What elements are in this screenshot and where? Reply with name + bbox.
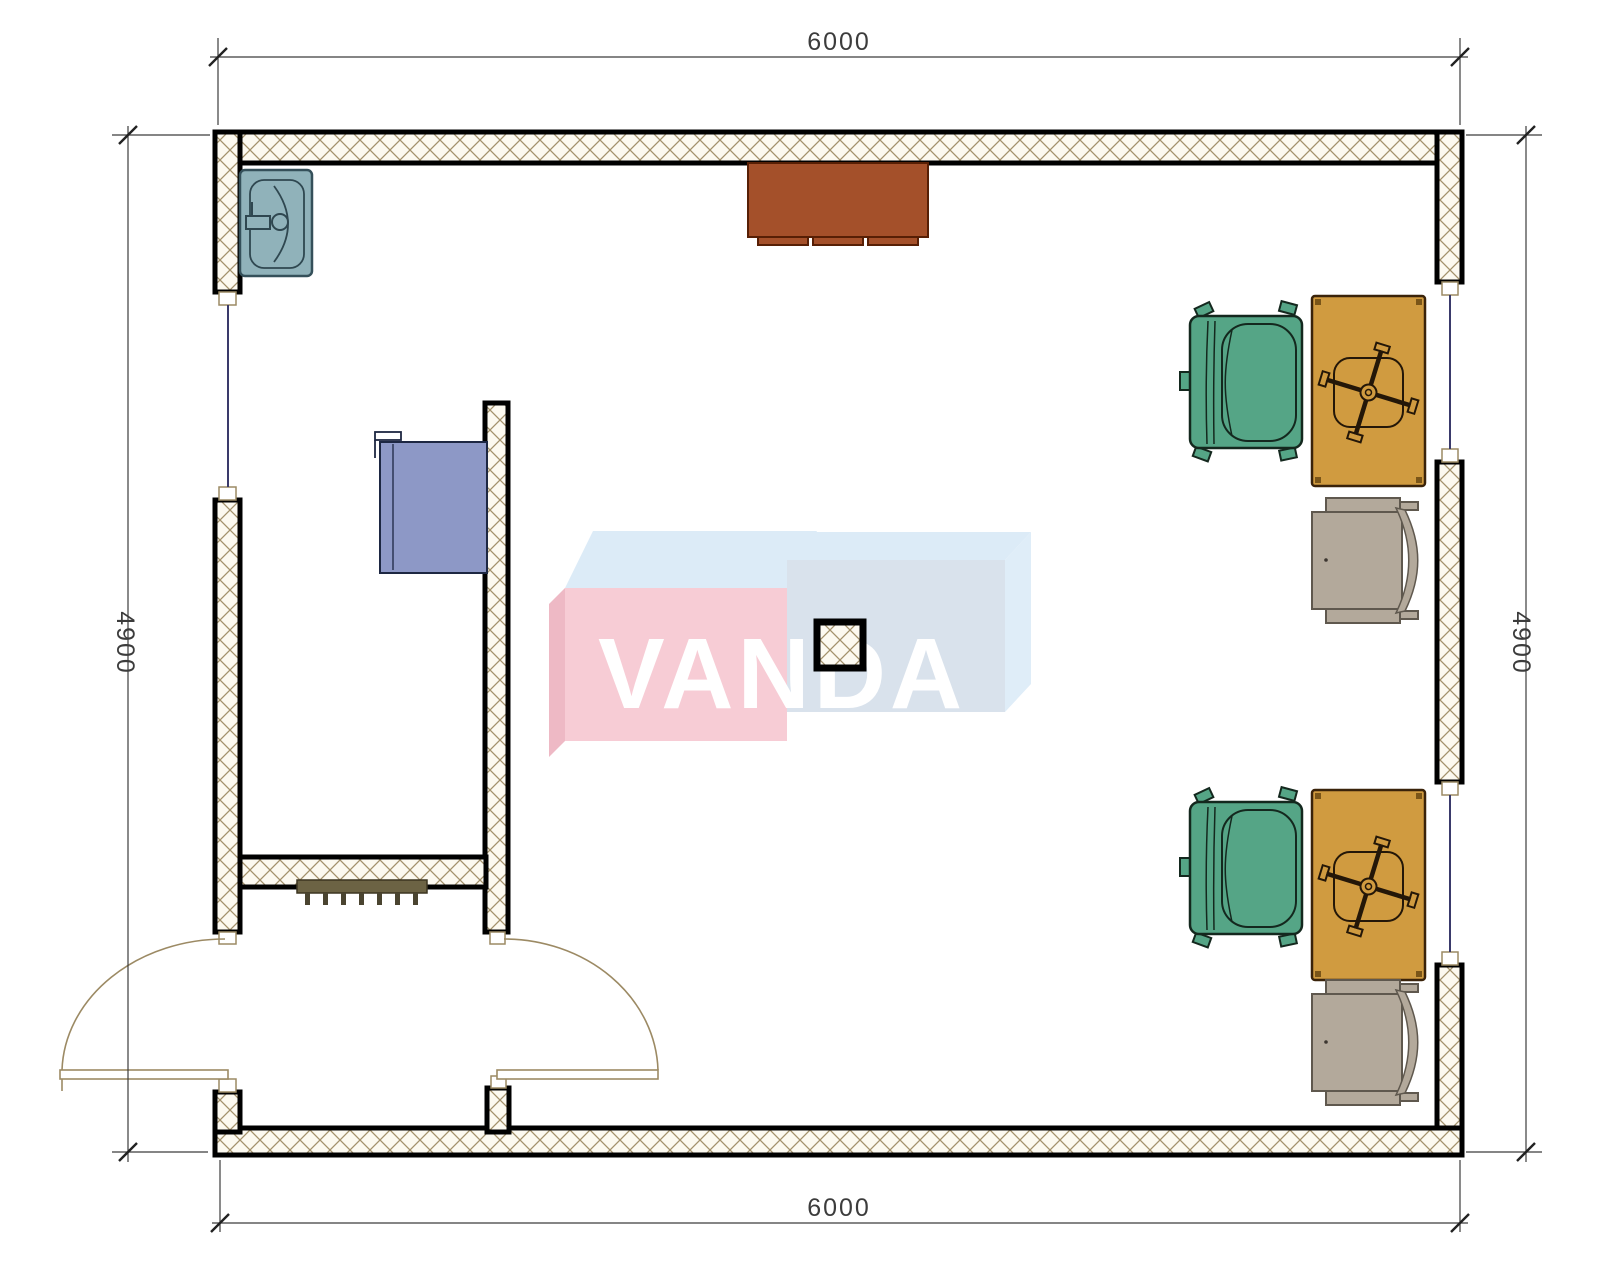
dimension-left: 4900 [111,126,210,1162]
right-wall-mid [1437,462,1462,782]
vanda-watermark: VANDA [549,531,1031,757]
door-leaf-right [497,1070,658,1079]
visitor-chair-2 [1312,980,1418,1105]
left-wall-upper [215,132,240,292]
dimension-bottom-label: 6000 [807,1194,871,1222]
dimension-top-label: 6000 [807,28,871,56]
dimension-right-label: 4900 [1507,611,1535,675]
wall-cabinet-blue [375,432,487,573]
floor-plan-svg: VANDA [0,0,1600,1280]
top-wall [215,132,1462,163]
armchair-2 [1180,787,1302,947]
armchair-1 [1180,301,1302,461]
sink [240,170,312,276]
bottom-door-pier-left [215,1092,240,1132]
desk-1 [1306,296,1431,486]
door-leaf-left [60,1070,228,1079]
desk-2 [1306,790,1431,980]
door-swing-arc-right [504,939,658,1070]
partition-wall-vertical [485,403,508,932]
bottom-wall [215,1128,1462,1155]
floor-plan-page: VANDA [0,0,1600,1280]
bottom-door-pier-right [487,1088,509,1132]
watermark-pink-top-face [565,531,817,588]
right-wall-upper [1437,132,1462,282]
dimension-right: 4900 [1466,126,1542,1162]
watermark-blue-top-face [787,532,1031,560]
watermark-blue-side-face [1005,532,1031,712]
watermark-pink-side-face [549,588,565,757]
visitor-chair-1 [1312,498,1418,623]
dimension-left-label: 4900 [111,611,139,675]
radiator [297,880,427,905]
door-swing-arc-left [62,939,225,1070]
dimension-top: 6000 [209,28,1469,125]
structural-column [817,622,863,668]
sideboard [748,163,928,245]
entry-doors [60,939,658,1091]
left-wall-lower [215,500,240,932]
dimension-bottom: 6000 [211,1160,1469,1232]
watermark-text: VANDA [598,618,966,730]
